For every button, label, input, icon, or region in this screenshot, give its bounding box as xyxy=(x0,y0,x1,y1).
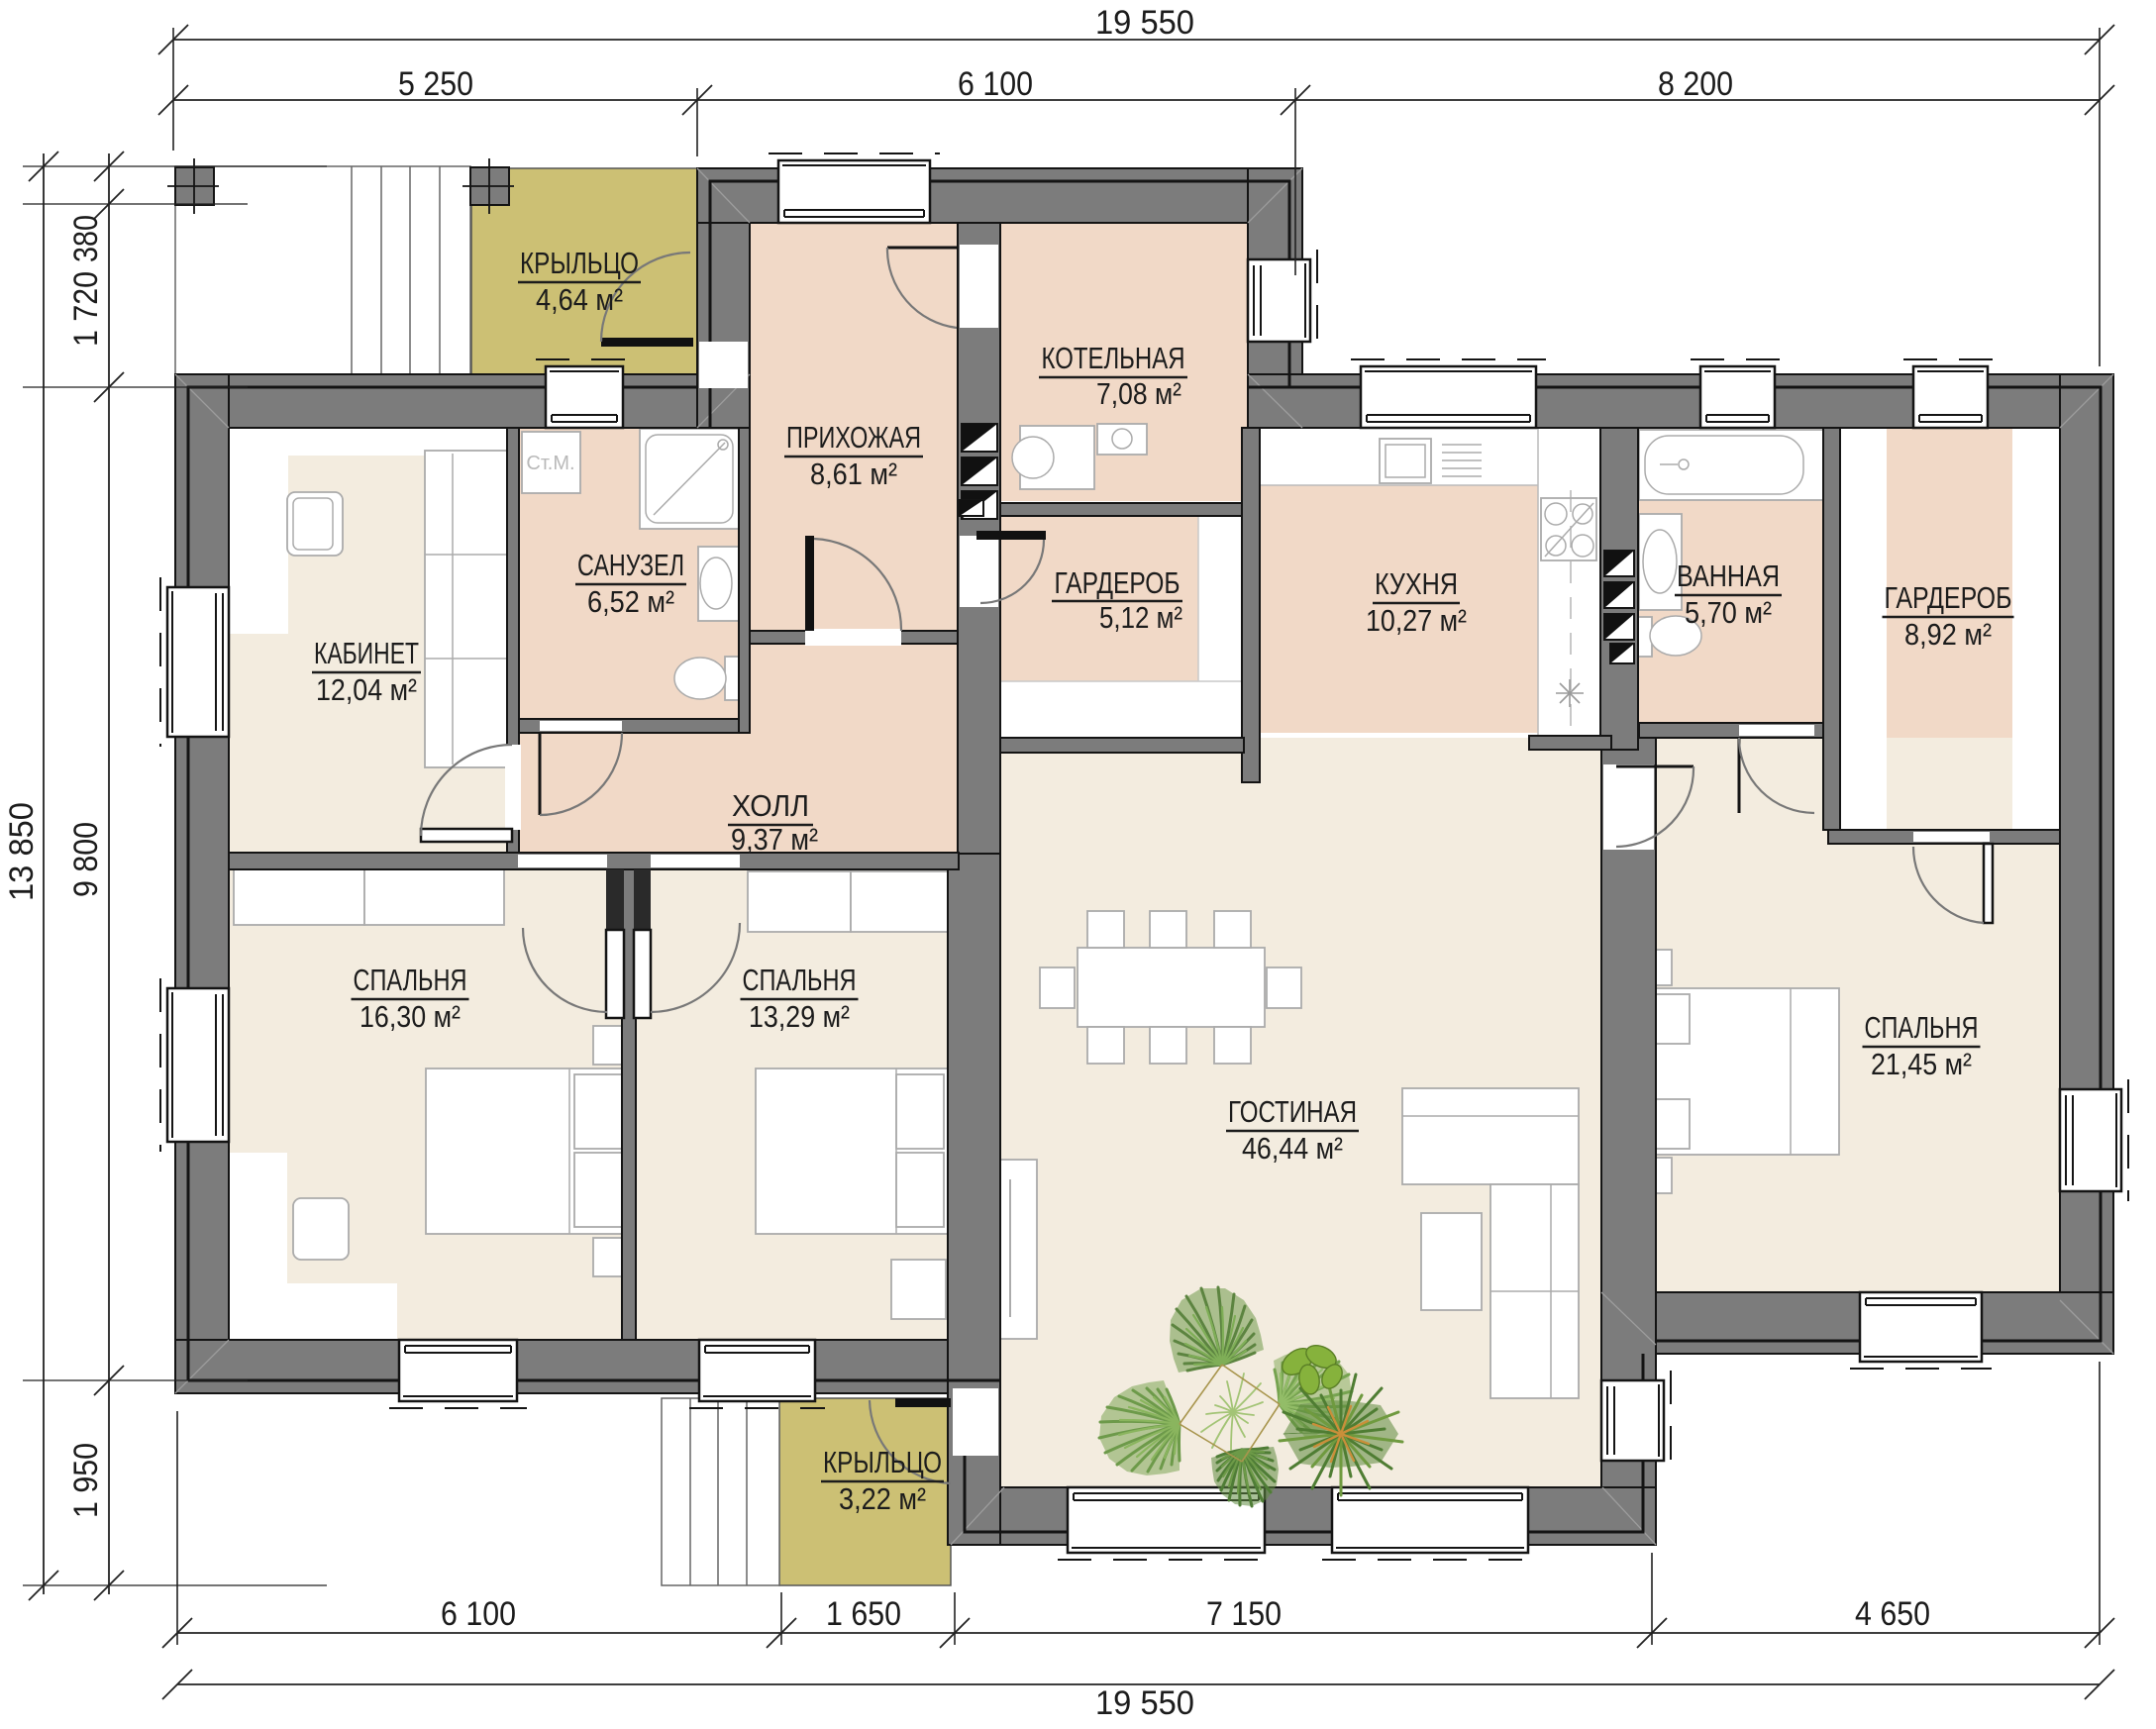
svg-text:4 650: 4 650 xyxy=(1855,1595,1930,1633)
svg-text:1 650: 1 650 xyxy=(826,1595,901,1633)
svg-text:6 100: 6 100 xyxy=(958,65,1033,103)
svg-text:САНУЗЕЛ: САНУЗЕЛ xyxy=(577,548,684,582)
svg-text:46,44 м²: 46,44 м² xyxy=(1242,1131,1343,1166)
svg-text:6,52 м²: 6,52 м² xyxy=(587,584,674,619)
svg-text:ХОЛЛ: ХОЛЛ xyxy=(732,788,809,823)
svg-text:СПАЛЬНЯ: СПАЛЬНЯ xyxy=(354,963,467,997)
svg-text:КРЫЛЬЦО: КРЫЛЬЦО xyxy=(823,1445,942,1479)
svg-text:10,27 м²: 10,27 м² xyxy=(1366,603,1467,638)
svg-text:ГАРДЕРОБ: ГАРДЕРОБ xyxy=(1055,565,1181,600)
svg-text:КУХНЯ: КУХНЯ xyxy=(1375,566,1458,601)
svg-text:7 150: 7 150 xyxy=(1206,1595,1282,1633)
svg-text:9,37 м²: 9,37 м² xyxy=(731,822,818,857)
svg-text:5,12 м²: 5,12 м² xyxy=(1099,600,1182,635)
svg-text:16,30 м²: 16,30 м² xyxy=(359,999,461,1034)
svg-text:13,29 м²: 13,29 м² xyxy=(749,999,850,1034)
svg-text:5 250: 5 250 xyxy=(398,65,473,103)
svg-text:9 800: 9 800 xyxy=(67,822,105,897)
svg-text:КРЫЛЬЦО: КРЫЛЬЦО xyxy=(520,246,639,280)
svg-text:КОТЕЛЬНАЯ: КОТЕЛЬНАЯ xyxy=(1042,341,1185,375)
svg-text:ВАННАЯ: ВАННАЯ xyxy=(1677,559,1780,593)
svg-text:Ст.М.: Ст.М. xyxy=(526,453,574,474)
svg-text:ГАРДЕРОБ: ГАРДЕРОБ xyxy=(1885,580,2012,615)
svg-text:ГОСТИНАЯ: ГОСТИНАЯ xyxy=(1228,1094,1357,1129)
svg-text:4,64 м²: 4,64 м² xyxy=(536,282,623,317)
svg-text:3,22 м²: 3,22 м² xyxy=(839,1481,926,1516)
svg-text:5,70 м²: 5,70 м² xyxy=(1685,595,1772,630)
svg-text:8,61 м²: 8,61 м² xyxy=(810,457,897,491)
svg-text:СПАЛЬНЯ: СПАЛЬНЯ xyxy=(1865,1010,1979,1045)
svg-text:19 550: 19 550 xyxy=(1095,1684,1194,1722)
svg-text:12,04 м²: 12,04 м² xyxy=(316,672,417,707)
svg-text:13 850: 13 850 xyxy=(3,802,41,901)
svg-text:СПАЛЬНЯ: СПАЛЬНЯ xyxy=(743,963,857,997)
svg-text:21,45 м²: 21,45 м² xyxy=(1871,1047,1972,1081)
svg-text:ПРИХОЖАЯ: ПРИХОЖАЯ xyxy=(786,420,921,455)
svg-text:8,92 м²: 8,92 м² xyxy=(1904,617,1992,652)
svg-text:19 550: 19 550 xyxy=(1095,4,1194,42)
svg-text:7,08 м²: 7,08 м² xyxy=(1096,376,1181,411)
svg-text:КАБИНЕТ: КАБИНЕТ xyxy=(314,636,419,670)
svg-text:1 720: 1 720 xyxy=(67,271,105,347)
svg-text:380: 380 xyxy=(67,215,105,262)
svg-text:1 950: 1 950 xyxy=(67,1443,105,1518)
svg-text:6 100: 6 100 xyxy=(441,1595,516,1633)
svg-text:8 200: 8 200 xyxy=(1658,65,1733,103)
